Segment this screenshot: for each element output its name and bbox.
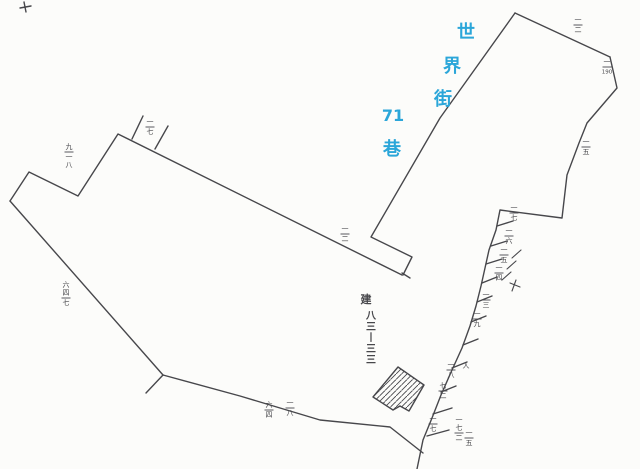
scribble <box>507 261 516 269</box>
parcel-number-char: 一 <box>575 16 582 24</box>
parcel-number-char: 九 <box>474 319 481 328</box>
parcel-number-label: 一五 <box>582 138 591 156</box>
parcel-number-char: 一 <box>501 246 508 254</box>
scribble <box>512 250 521 258</box>
building-number-char: 三 <box>366 343 376 355</box>
parcel-number-label: 一二 <box>341 225 350 243</box>
building-number-char: 三 <box>366 321 376 333</box>
parcel-number-char: 一 <box>496 264 503 272</box>
parcel-number-char: 一 <box>287 399 294 407</box>
parcel-number-char: 190 <box>602 70 613 76</box>
parcel-number-char: 一 <box>456 416 463 424</box>
parcel-number-label: 一六 <box>505 227 514 245</box>
building-layer <box>373 367 424 411</box>
east-boundary <box>417 57 617 469</box>
parcel-number-char: 九 <box>66 142 73 151</box>
street-name-char: 世 <box>457 22 475 43</box>
building-label-prefix: 建 <box>361 292 373 306</box>
parcel-number-label: 一八 <box>447 361 456 379</box>
building-number-char: 八 <box>365 310 377 322</box>
cadastral-map-scan: 一七九一八一二一190一五一二一七一六一五一四一三一九六四七六四一八一八人七二一… <box>0 0 640 469</box>
parcel-number-char: 七 <box>456 423 463 432</box>
parcel-number-char: 六 <box>63 280 70 289</box>
parcel-number-char: 一 <box>604 58 611 66</box>
street-name-char: 71 <box>382 106 404 125</box>
parcel-number-char: 七 <box>63 298 70 307</box>
parcel-number-char: 人 <box>463 362 470 370</box>
parcel-number-char: 一 <box>483 291 490 299</box>
parcel-number-label: 一八 <box>286 399 295 417</box>
parcel-number-char: 八 <box>287 409 294 417</box>
corner-cross-h <box>20 6 31 8</box>
parcel-number-char: 二 <box>575 26 582 34</box>
parcel-number-label: 一七 <box>510 204 519 222</box>
parcel-number-label: 一三 <box>482 291 491 309</box>
parcel-number-label: 六四七 <box>62 280 71 307</box>
parcel-number-char: 八 <box>66 161 73 169</box>
street-name-char: 街 <box>433 88 452 110</box>
west-parcel-west-edge <box>10 201 163 375</box>
street-name-char: 巷 <box>382 139 402 160</box>
parcel-number-label: 一七二 <box>455 416 464 442</box>
parcel-number-char: 六 <box>506 236 513 245</box>
parcel-number-char: 一 <box>147 118 154 126</box>
parcel-number-label: 一二 <box>574 16 583 34</box>
parcel-number-char: 五 <box>583 148 590 156</box>
parcel-number-label: 六四 <box>265 400 274 419</box>
tick <box>132 116 143 139</box>
parcel-number-char: 一 <box>430 415 437 423</box>
parcel-number-char: 一 <box>342 225 349 233</box>
parcel-number-char: 三 <box>483 301 490 309</box>
parcel-number-char: 七 <box>511 213 518 222</box>
parcel-number-char: 一 <box>583 138 590 146</box>
parcel-number-char: 一 <box>506 227 513 235</box>
parcel-number-char: 七 <box>430 424 437 433</box>
parcel-number-label: 一四 <box>495 264 504 282</box>
street-name-char: 界 <box>443 56 461 77</box>
building-number-char: 丨 <box>366 332 376 344</box>
parcel-number-label: 一七 <box>429 415 438 433</box>
parcel-number-char: 一 <box>466 429 473 437</box>
northeast-parcel-north-edge <box>515 13 610 57</box>
parcel-number-label: 一五 <box>465 429 474 447</box>
building-83-33 <box>373 367 424 411</box>
parcel-number-char: 六 <box>266 400 273 409</box>
parcel-number-char: 五 <box>466 439 473 447</box>
parcel-number-char: 二 <box>456 434 463 442</box>
parcel-number-char: 四 <box>266 411 273 419</box>
parcel-number-char: 一 <box>66 153 73 161</box>
west-parcel-spur <box>146 375 163 393</box>
parcel-number-label: 一五 <box>500 246 509 264</box>
parcel-number-char: 四 <box>496 274 503 282</box>
tick <box>155 126 168 149</box>
parcel-number-char: 一 <box>448 361 455 369</box>
parcel-number-char: 二 <box>342 235 349 243</box>
building-number-char: 三 <box>366 354 376 366</box>
cadastral-map-canvas: 一七九一八一二一190一五一二一七一六一五一四一三一九六四七六四一八一八人七二一… <box>0 0 640 469</box>
parcel-number-char: 八 <box>448 371 455 379</box>
street-name-layer: 世界街71巷建八三丨三三 <box>361 22 476 366</box>
parcel-number-char: 四 <box>63 289 70 297</box>
parcel-number-label: 九一八 <box>65 142 74 169</box>
parcel-number-char: 一 <box>511 204 518 212</box>
parcel-number-char: 二 <box>440 392 447 400</box>
parcel-number-label: 一九 <box>473 310 482 328</box>
parcel-number-label: 人 <box>463 362 470 370</box>
parcel-number-char: 五 <box>501 256 508 264</box>
parcel-number-layer: 一七九一八一二一190一五一二一七一六一五一四一三一九六四七六四一八一八人七二一… <box>62 16 613 447</box>
parcel-number-char: 一 <box>474 310 481 318</box>
parcel-number-char: 七 <box>147 127 154 136</box>
boundary-lines-layer <box>10 2 617 469</box>
parcel-number-label: 一七 <box>146 118 155 136</box>
parcel-number-char: 七 <box>440 381 447 390</box>
